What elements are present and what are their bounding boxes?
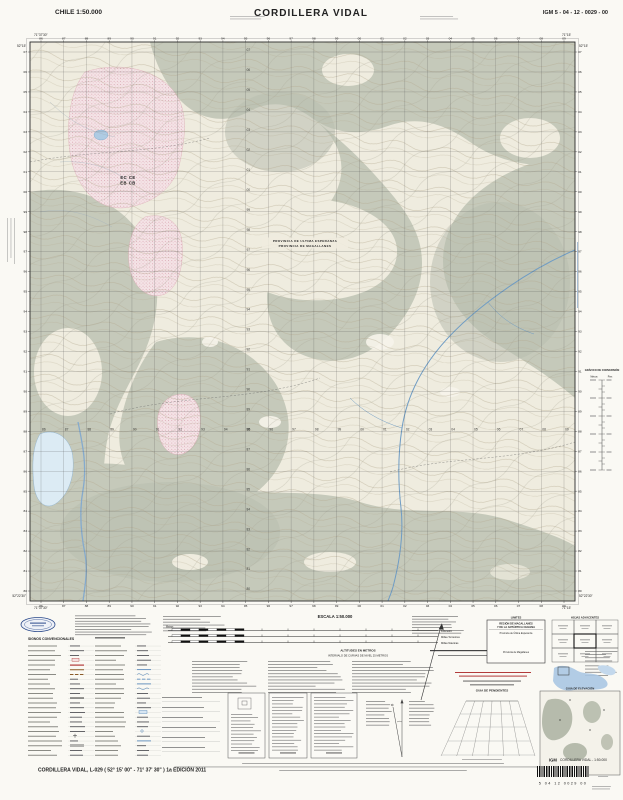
svg-text:93: 93 xyxy=(198,37,202,41)
svg-text:01: 01 xyxy=(246,168,250,172)
scale-bar-label-mi: Millas Terrestres xyxy=(441,635,461,639)
svg-text:01: 01 xyxy=(380,37,384,41)
svg-text:98: 98 xyxy=(315,427,319,431)
svg-text:94: 94 xyxy=(246,308,250,312)
svg-text:87: 87 xyxy=(24,449,28,453)
footer-title: CORDILLERA VIDAL, L-029 ( 52° 15' 00" - … xyxy=(38,766,206,774)
svg-text:86: 86 xyxy=(42,427,46,431)
svg-text:96: 96 xyxy=(267,604,271,608)
svg-text:91: 91 xyxy=(153,604,157,608)
svg-text:02: 02 xyxy=(406,427,410,431)
svg-text:86: 86 xyxy=(246,467,250,471)
svg-text:05: 05 xyxy=(246,88,250,92)
map-sheet: 8687888990919293949596979899000102030405… xyxy=(0,0,623,800)
svg-text:03: 03 xyxy=(246,128,250,132)
svg-text:95: 95 xyxy=(244,604,248,608)
coord-top-left-lon: 71°37'30" xyxy=(34,33,48,37)
scale-title: ESCALA 1:50.000 xyxy=(318,614,353,619)
svg-text:99: 99 xyxy=(335,604,339,608)
country-scale: CHILE 1:50.000 xyxy=(55,9,102,16)
svg-text:87: 87 xyxy=(65,427,69,431)
svg-text:08: 08 xyxy=(540,37,544,41)
svg-text:87: 87 xyxy=(246,447,250,451)
svg-text:06: 06 xyxy=(494,37,498,41)
svg-text:81: 81 xyxy=(24,569,28,573)
coord-bottom-left-lat: 52°22'30" xyxy=(12,594,26,598)
svg-text:05: 05 xyxy=(471,604,475,608)
svg-text:02: 02 xyxy=(403,37,407,41)
svg-text:87: 87 xyxy=(62,604,66,608)
sheet-canvas: 8687888990919293949596979899000102030405… xyxy=(0,0,623,800)
svg-text:01: 01 xyxy=(578,170,582,174)
svg-text:91: 91 xyxy=(156,427,160,431)
svg-text:00: 00 xyxy=(246,188,250,192)
svg-text:06: 06 xyxy=(497,427,501,431)
svg-text:92: 92 xyxy=(246,348,250,352)
svg-text:86: 86 xyxy=(578,469,582,473)
svg-text:99: 99 xyxy=(246,208,250,212)
svg-text:84: 84 xyxy=(24,509,28,513)
interval-line: INTERVALO DE CURVAS DE NIVEL 25 METROS xyxy=(328,654,388,658)
svg-text:99: 99 xyxy=(335,37,339,41)
svg-text:84: 84 xyxy=(246,507,250,511)
coord-bottom-right-lat: 52°22'30" xyxy=(579,594,593,598)
svg-text:89: 89 xyxy=(246,408,250,412)
svg-text:81: 81 xyxy=(246,567,250,571)
svg-text:94: 94 xyxy=(221,37,225,41)
svg-text:01: 01 xyxy=(380,604,384,608)
svg-text:02: 02 xyxy=(246,148,250,152)
svg-text:81: 81 xyxy=(578,569,582,573)
conversion-col-left: Metros xyxy=(590,376,598,379)
svg-text:94: 94 xyxy=(221,604,225,608)
svg-text:98: 98 xyxy=(246,228,250,232)
map-body: 8687888990919293949596979899000102030405… xyxy=(30,42,575,601)
svg-text:95: 95 xyxy=(246,288,250,292)
svg-text:88: 88 xyxy=(578,429,582,433)
svg-text:91: 91 xyxy=(578,370,582,374)
svg-text:88: 88 xyxy=(24,429,28,433)
svg-text:97: 97 xyxy=(246,248,250,252)
svg-text:07: 07 xyxy=(578,50,582,54)
svg-text:82: 82 xyxy=(246,547,250,551)
svg-text:92: 92 xyxy=(176,37,180,41)
conversion-title: GRÁFICO DE CONVERSIÓN xyxy=(585,367,620,372)
svg-text:89: 89 xyxy=(24,409,28,413)
svg-text:03: 03 xyxy=(426,604,430,608)
svg-text:08: 08 xyxy=(542,427,546,431)
svg-text:07: 07 xyxy=(24,50,28,54)
svg-text:88: 88 xyxy=(246,427,250,431)
svg-text:09: 09 xyxy=(565,427,569,431)
svg-text:01: 01 xyxy=(383,427,387,431)
svg-text:92: 92 xyxy=(578,350,582,354)
svg-text:87: 87 xyxy=(578,449,582,453)
svg-text:91: 91 xyxy=(24,370,28,374)
svg-text:07: 07 xyxy=(520,427,524,431)
svg-text:90: 90 xyxy=(24,389,28,393)
svg-text:93: 93 xyxy=(201,427,205,431)
svg-text:85: 85 xyxy=(246,487,250,491)
svg-text:89: 89 xyxy=(107,37,111,41)
svg-text:03: 03 xyxy=(426,37,430,41)
svg-text:82: 82 xyxy=(24,549,28,553)
coord-top-right-lat: 52°15' xyxy=(579,44,588,48)
svg-text:02: 02 xyxy=(24,150,28,154)
svg-text:06: 06 xyxy=(24,70,28,74)
north-arrow xyxy=(421,623,444,700)
svg-text:06: 06 xyxy=(494,604,498,608)
legend-title: SIGNOS CONVENCIONALES xyxy=(28,637,75,641)
svg-text:98: 98 xyxy=(312,604,316,608)
svg-text:89: 89 xyxy=(578,409,582,413)
svg-text:82: 82 xyxy=(578,549,582,553)
svg-text:92: 92 xyxy=(176,604,180,608)
svg-text:98: 98 xyxy=(312,37,316,41)
svg-text:08: 08 xyxy=(540,604,544,608)
svg-text:04: 04 xyxy=(449,37,453,41)
svg-text:01: 01 xyxy=(24,170,28,174)
svg-text:03: 03 xyxy=(578,130,582,134)
svg-text:85: 85 xyxy=(578,489,582,493)
svg-text:07: 07 xyxy=(517,37,521,41)
svg-text:90: 90 xyxy=(130,37,134,41)
svg-text:85: 85 xyxy=(24,489,28,493)
svg-text:95: 95 xyxy=(244,37,248,41)
svg-text:96: 96 xyxy=(578,270,582,274)
svg-text:89: 89 xyxy=(110,427,114,431)
sheet-code: IGM 5 - 04 - 12 - 0029 - 00 xyxy=(543,10,608,16)
svg-text:96: 96 xyxy=(267,37,271,41)
scale-bar-label-nmi: Millas Náuticas xyxy=(441,641,459,645)
svg-text:88: 88 xyxy=(85,37,89,41)
svg-text:09: 09 xyxy=(562,37,566,41)
svg-text:83: 83 xyxy=(578,529,582,533)
declination-diagram xyxy=(391,699,403,757)
svg-text:04: 04 xyxy=(449,604,453,608)
svg-text:96: 96 xyxy=(246,268,250,272)
svg-text:07: 07 xyxy=(246,48,250,52)
svg-text:03: 03 xyxy=(429,427,433,431)
svg-text:94: 94 xyxy=(578,310,582,314)
svg-text:80: 80 xyxy=(24,589,28,593)
svg-text:04: 04 xyxy=(451,427,455,431)
barcode xyxy=(537,766,589,777)
contour-lines-2 xyxy=(30,42,575,601)
svg-text:94: 94 xyxy=(24,310,28,314)
zone-code-bottom: EB CB xyxy=(120,181,136,186)
svg-text:90: 90 xyxy=(130,604,134,608)
svg-text:80: 80 xyxy=(578,589,582,593)
svg-text:92: 92 xyxy=(178,427,182,431)
svg-text:05: 05 xyxy=(471,37,475,41)
svg-text:91: 91 xyxy=(153,37,157,41)
svg-text:88: 88 xyxy=(85,604,89,608)
svg-text:95: 95 xyxy=(24,290,28,294)
svg-text:90: 90 xyxy=(133,427,137,431)
conversion-col-right: Pies xyxy=(608,377,613,379)
svg-text:89: 89 xyxy=(107,604,111,608)
svg-text:99: 99 xyxy=(24,210,28,214)
svg-text:06: 06 xyxy=(246,68,250,72)
svg-text:87: 87 xyxy=(62,37,66,41)
sheet-title: CORDILLERA VIDAL xyxy=(254,8,368,19)
svg-text:96: 96 xyxy=(24,270,28,274)
svg-text:92: 92 xyxy=(24,350,28,354)
svg-text:97: 97 xyxy=(578,250,582,254)
coord-top-right-lon: 71°15' xyxy=(562,33,571,37)
svg-text:97: 97 xyxy=(24,250,28,254)
svg-text:00: 00 xyxy=(360,427,364,431)
coord-top-left-lat: 52°15' xyxy=(17,44,26,48)
svg-text:07: 07 xyxy=(517,604,521,608)
svg-text:00: 00 xyxy=(24,190,28,194)
elevation-guide-title: GUIA DE ELEVACIÓN xyxy=(566,685,594,690)
svg-text:95: 95 xyxy=(578,290,582,294)
svg-text:98: 98 xyxy=(24,230,28,234)
svg-text:96: 96 xyxy=(269,427,273,431)
svg-text:90: 90 xyxy=(578,389,582,393)
svg-text:93: 93 xyxy=(198,604,202,608)
province-boundary-label-top: PROVINCIA DE ULTIMA ESPERANZA xyxy=(273,239,338,243)
svg-text:04: 04 xyxy=(578,110,582,114)
svg-text:97: 97 xyxy=(289,37,293,41)
svg-text:83: 83 xyxy=(246,527,250,531)
svg-text:97: 97 xyxy=(292,427,296,431)
svg-text:80: 80 xyxy=(246,587,250,591)
svg-text:04: 04 xyxy=(246,108,250,112)
limits-province-top: Provincia de Última Esperanza xyxy=(500,632,533,635)
red-note-lines xyxy=(455,672,531,685)
coord-bottom-right-lon: 71°15' xyxy=(562,606,571,610)
altitudes-heading: ALTITUDES EN METROS xyxy=(340,649,375,653)
slope-guide-title: GUIA DE PENDIENTES xyxy=(476,689,508,693)
footer-sheet-name: CORDILLERA VIDAL - 1:50.000 xyxy=(560,758,607,762)
svg-text:99: 99 xyxy=(578,210,582,214)
svg-text:97: 97 xyxy=(289,604,293,608)
svg-text:00: 00 xyxy=(358,37,362,41)
svg-text:00: 00 xyxy=(358,604,362,608)
limits-province-bottom: Provincia de Magallanes xyxy=(503,651,530,654)
scale-meters-label: Metros xyxy=(166,626,174,629)
svg-text:00: 00 xyxy=(578,190,582,194)
svg-text:04: 04 xyxy=(24,110,28,114)
svg-text:86: 86 xyxy=(39,37,43,41)
svg-text:83: 83 xyxy=(24,529,28,533)
svg-text:84: 84 xyxy=(578,509,582,513)
adjacent-sheets-title: HOJAS ADYACENTES xyxy=(571,615,599,619)
coord-bottom-left-lon: 71°37'30" xyxy=(34,606,48,610)
limits-title: LIMITES xyxy=(511,615,522,619)
svg-text:88: 88 xyxy=(87,427,91,431)
svg-text:03: 03 xyxy=(24,130,28,134)
svg-text:02: 02 xyxy=(403,604,407,608)
svg-text:93: 93 xyxy=(24,330,28,334)
publisher: IGM xyxy=(549,758,557,763)
svg-text:99: 99 xyxy=(338,427,342,431)
svg-text:91: 91 xyxy=(246,368,250,372)
svg-text:93: 93 xyxy=(246,328,250,332)
svg-text:05: 05 xyxy=(578,90,582,94)
svg-text:98: 98 xyxy=(578,230,582,234)
barcode-digits: 5 04 12 0029 00 xyxy=(539,782,587,786)
svg-text:94: 94 xyxy=(224,427,228,431)
svg-text:86: 86 xyxy=(24,469,28,473)
svg-text:93: 93 xyxy=(578,330,582,334)
svg-text:06: 06 xyxy=(578,70,582,74)
igm-logo xyxy=(21,618,55,632)
zone-code-top: EC CE xyxy=(120,175,135,180)
province-boundary-label-bottom: PROVINCIA DE MAGALLANES xyxy=(279,244,332,248)
svg-text:05: 05 xyxy=(474,427,478,431)
scale-bar-label-km: Kilómetro xyxy=(441,629,453,633)
svg-text:05: 05 xyxy=(24,90,28,94)
svg-text:90: 90 xyxy=(246,388,250,392)
svg-text:02: 02 xyxy=(578,150,582,154)
